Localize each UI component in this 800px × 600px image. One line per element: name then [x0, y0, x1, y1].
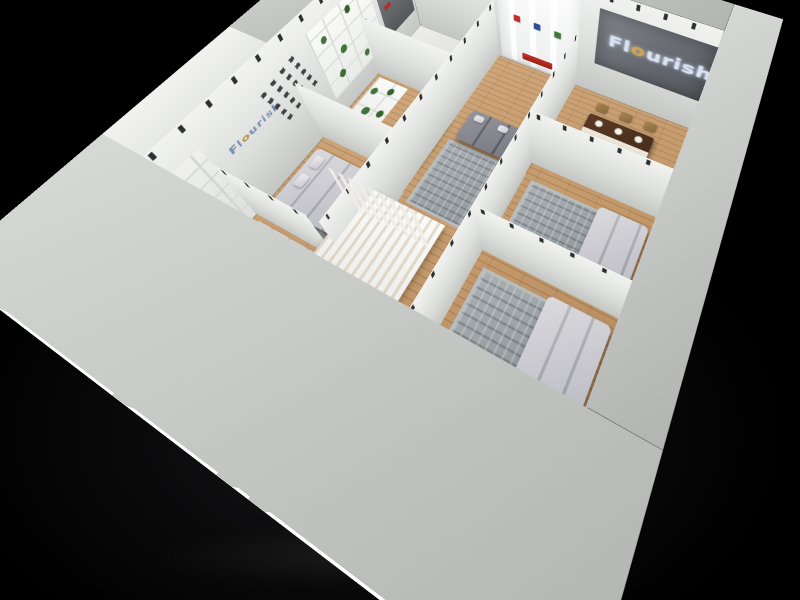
sofa-pillow — [473, 114, 486, 123]
bed-pillow — [293, 173, 311, 189]
dining-chair — [642, 121, 657, 134]
sofa-pillow — [497, 125, 510, 135]
display-chip-green — [554, 31, 561, 39]
render-stage: Flourish Flourish — [0, 0, 800, 600]
logo-text: Fl — [607, 32, 632, 57]
booth-floor-plan: Flourish Flourish — [93, 0, 738, 600]
display-chip-blue — [534, 23, 541, 31]
logo-text: urish — [644, 45, 715, 85]
bed-pillow — [308, 155, 325, 170]
logo-accent-letter: o — [630, 40, 648, 62]
kitchen-red-accent — [384, 1, 391, 11]
display-chip-red — [514, 14, 521, 22]
